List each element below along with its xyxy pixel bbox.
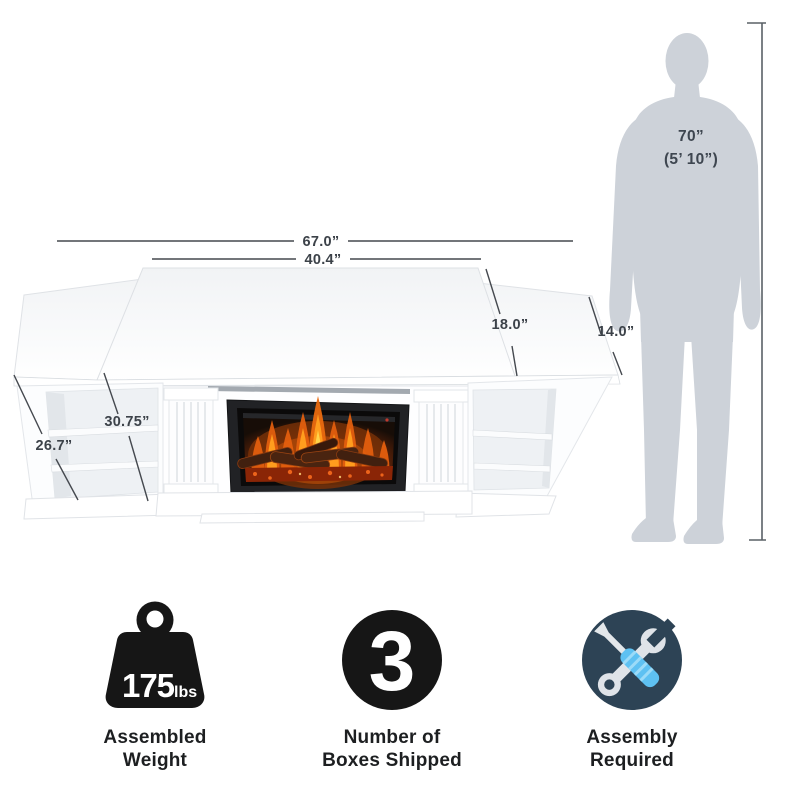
- feature-label-line1: Assembly: [527, 726, 737, 749]
- feature-label-line1: Assembled: [50, 726, 260, 749]
- person-height-inches: 70”: [678, 128, 704, 145]
- assembly-tools-icon: [580, 608, 684, 712]
- ember-bed: [245, 466, 393, 482]
- center-base-step: [200, 512, 424, 523]
- indicator-light: [385, 418, 388, 421]
- weight-icon: 175 lbs: [90, 600, 220, 712]
- feature-boxes-shipped: 3 Number of Boxes Shipped: [287, 596, 497, 772]
- human-silhouette: [609, 33, 760, 544]
- dimension-side-height: 26.7”: [36, 438, 73, 454]
- fireplace-console-illustration: [14, 268, 620, 523]
- dimension-overall-width: 67.0”: [303, 234, 340, 250]
- boxes-count-value: 3: [369, 614, 416, 708]
- person-height-feet: (5’ 10”): [664, 151, 718, 168]
- boxes-count-icon: 3: [340, 608, 444, 712]
- feature-label: Assembled Weight: [50, 726, 260, 772]
- product-features-row: 175 lbs Assembled Weight 3 Number of Box…: [0, 596, 800, 800]
- feature-label-line2: Boxes Shipped: [287, 749, 497, 772]
- center-base: [156, 491, 472, 516]
- dimension-center-width: 40.4”: [305, 252, 342, 268]
- dimension-side-depth: 14.0”: [598, 324, 635, 340]
- fireplace-insert: [227, 396, 409, 493]
- feature-label: Assembly Required: [527, 726, 737, 772]
- right-column: [414, 390, 468, 500]
- dimension-center-depth: 18.0”: [492, 317, 529, 333]
- feature-assembly-required: Assembly Required: [527, 596, 737, 772]
- feature-assembled-weight: 175 lbs Assembled Weight: [50, 596, 260, 772]
- weight-unit: lbs: [174, 684, 197, 701]
- center-top: [97, 268, 515, 380]
- weight-value: 175: [122, 667, 175, 704]
- dimension-diagram-canvas: 70” (5’ 10”) 67.0” 40.4” 18.0” 14.0” 30.…: [0, 0, 800, 575]
- product-dimension-diagram: 70” (5’ 10”) 67.0” 40.4” 18.0” 14.0” 30.…: [0, 0, 800, 800]
- feature-label: Number of Boxes Shipped: [287, 726, 497, 772]
- feature-label-line2: Required: [527, 749, 737, 772]
- dimension-interior-height: 30.75”: [104, 414, 149, 430]
- feature-label-line2: Weight: [50, 749, 260, 772]
- feature-label-line1: Number of: [287, 726, 497, 749]
- left-column: [164, 388, 218, 500]
